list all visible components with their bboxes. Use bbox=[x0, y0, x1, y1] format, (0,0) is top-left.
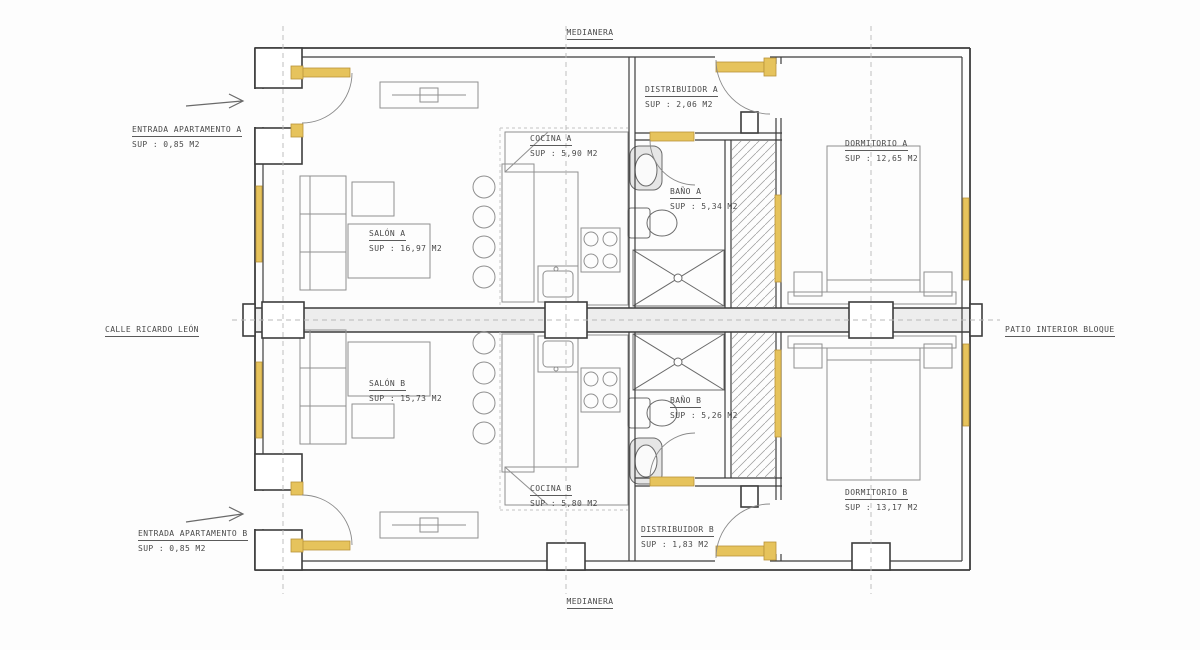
sofa-b bbox=[300, 330, 346, 444]
room-sup: SUP : 5,80 M2 bbox=[530, 498, 598, 509]
kitchen-counter-b bbox=[505, 335, 628, 505]
entrance-b-name: ENTRADA APARTAMENTO B bbox=[138, 528, 248, 541]
entrance-a-sup: SUP : 0,85 M2 bbox=[132, 139, 242, 150]
label-dormitorio-b: DORMITORIO B SUP : 13,17 M2 bbox=[845, 487, 918, 513]
room-sup: SUP : 5,90 M2 bbox=[530, 148, 598, 159]
chair-a bbox=[473, 176, 495, 198]
label-entrance-b: ENTRADA APARTAMENTO B SUP : 0,85 M2 bbox=[138, 528, 248, 554]
label-patio: PATIO INTERIOR BLOQUE bbox=[1005, 324, 1115, 337]
table-b bbox=[352, 404, 394, 438]
door-leaf-distribuidor-a bbox=[716, 62, 764, 72]
room-sup: SUP : 15,73 M2 bbox=[369, 393, 442, 404]
sofa-a bbox=[300, 176, 346, 290]
door-leaf-bath-a bbox=[650, 132, 694, 141]
label-street: CALLE RICARDO LEÓN bbox=[105, 324, 199, 337]
pier bbox=[547, 543, 585, 570]
dining-table-a bbox=[502, 164, 534, 302]
room-name: BAÑO B bbox=[670, 395, 701, 408]
room-sup: SUP : 13,17 M2 bbox=[845, 502, 918, 513]
label-salon-b: SALÓN B SUP : 15,73 M2 bbox=[369, 378, 442, 404]
table-a bbox=[352, 182, 394, 216]
medianera-bottom-text: MEDIANERA bbox=[567, 596, 614, 609]
room-name: SALÓN B bbox=[369, 378, 406, 391]
room-sup: SUP : 1,83 M2 bbox=[641, 539, 714, 550]
bed-a bbox=[827, 146, 920, 292]
cooktop-b bbox=[581, 368, 620, 412]
room-name: COCINA A bbox=[530, 133, 572, 146]
wardrobe-door-a bbox=[775, 195, 781, 282]
chair-b bbox=[473, 422, 495, 444]
cooktop-a bbox=[581, 228, 620, 272]
label-salon-a: SALÓN A SUP : 16,97 M2 bbox=[369, 228, 442, 254]
room-name: SALÓN A bbox=[369, 228, 406, 241]
wardrobe-door-b bbox=[775, 350, 781, 437]
street-text: CALLE RICARDO LEÓN bbox=[105, 324, 199, 337]
window-street-a bbox=[256, 186, 262, 262]
chair-a bbox=[473, 206, 495, 228]
door-leaf-distribuidor-b bbox=[716, 546, 764, 556]
entrance-a-name: ENTRADA APARTAMENTO A bbox=[132, 124, 242, 137]
room-name: DISTRIBUIDOR B bbox=[641, 524, 714, 537]
door-leaf-entrance-a bbox=[300, 68, 350, 77]
label-cocina-a: COCINA A SUP : 5,90 M2 bbox=[530, 133, 598, 159]
chair-a bbox=[473, 266, 495, 288]
room-sup: SUP : 2,06 M2 bbox=[645, 99, 718, 110]
window-patio-a bbox=[963, 198, 969, 280]
window-patio-b bbox=[963, 344, 969, 426]
label-medianera-top: MEDIANERA bbox=[540, 27, 640, 40]
label-distribuidor-a: DISTRIBUIDOR A SUP : 2,06 M2 bbox=[645, 84, 718, 110]
chair-a bbox=[473, 236, 495, 258]
label-medianera-bottom: MEDIANERA bbox=[540, 596, 640, 609]
furniture-apartment-a bbox=[300, 82, 956, 305]
room-name: DORMITORIO B bbox=[845, 487, 908, 500]
bathroom-fixtures-a bbox=[628, 146, 724, 306]
chair-b bbox=[473, 362, 495, 384]
wardrobe-a bbox=[732, 141, 775, 307]
label-bano-b: BAÑO B SUP : 5,26 M2 bbox=[670, 395, 738, 421]
room-name: COCINA B bbox=[530, 483, 572, 496]
entrance-opening-b bbox=[252, 491, 266, 529]
dining-table-b bbox=[502, 334, 534, 472]
arrow-entrance-b bbox=[186, 514, 242, 522]
door-leaf-entrance-b bbox=[300, 541, 350, 550]
patio-text: PATIO INTERIOR BLOQUE bbox=[1005, 324, 1115, 337]
room-name: DORMITORIO A bbox=[845, 138, 908, 151]
room-name: DISTRIBUIDOR A bbox=[645, 84, 718, 97]
wardrobe-b bbox=[732, 333, 775, 477]
floor-plan-page: MEDIANERA MEDIANERA CALLE RICARDO LEÓN P… bbox=[0, 0, 1200, 650]
label-entrance-a: ENTRADA APARTAMENTO A SUP : 0,85 M2 bbox=[132, 124, 242, 150]
bed-b bbox=[827, 348, 920, 480]
medianera-top-text: MEDIANERA bbox=[567, 27, 614, 40]
door-leaf-bath-b bbox=[650, 477, 694, 486]
pier bbox=[852, 543, 890, 570]
label-dormitorio-a: DORMITORIO A SUP : 12,65 M2 bbox=[845, 138, 918, 164]
room-sup: SUP : 16,97 M2 bbox=[369, 243, 442, 254]
entrance-b-sup: SUP : 0,85 M2 bbox=[138, 543, 248, 554]
window-street-b bbox=[256, 362, 262, 438]
entrance-opening-a bbox=[252, 89, 266, 127]
pier bbox=[741, 486, 758, 507]
room-sup: SUP : 5,34 M2 bbox=[670, 201, 738, 212]
pier bbox=[741, 112, 758, 133]
chair-b bbox=[473, 392, 495, 414]
room-name: BAÑO A bbox=[670, 186, 701, 199]
entrance-arrows bbox=[186, 94, 243, 522]
room-sup: SUP : 5,26 M2 bbox=[670, 410, 738, 421]
label-distribuidor-b: DISTRIBUIDOR B SUP : 1,83 M2 bbox=[641, 524, 714, 550]
room-sup: SUP : 12,65 M2 bbox=[845, 153, 918, 164]
label-bano-a: BAÑO A SUP : 5,34 M2 bbox=[670, 186, 738, 212]
label-cocina-b: COCINA B SUP : 5,80 M2 bbox=[530, 483, 598, 509]
chair-b bbox=[473, 332, 495, 354]
